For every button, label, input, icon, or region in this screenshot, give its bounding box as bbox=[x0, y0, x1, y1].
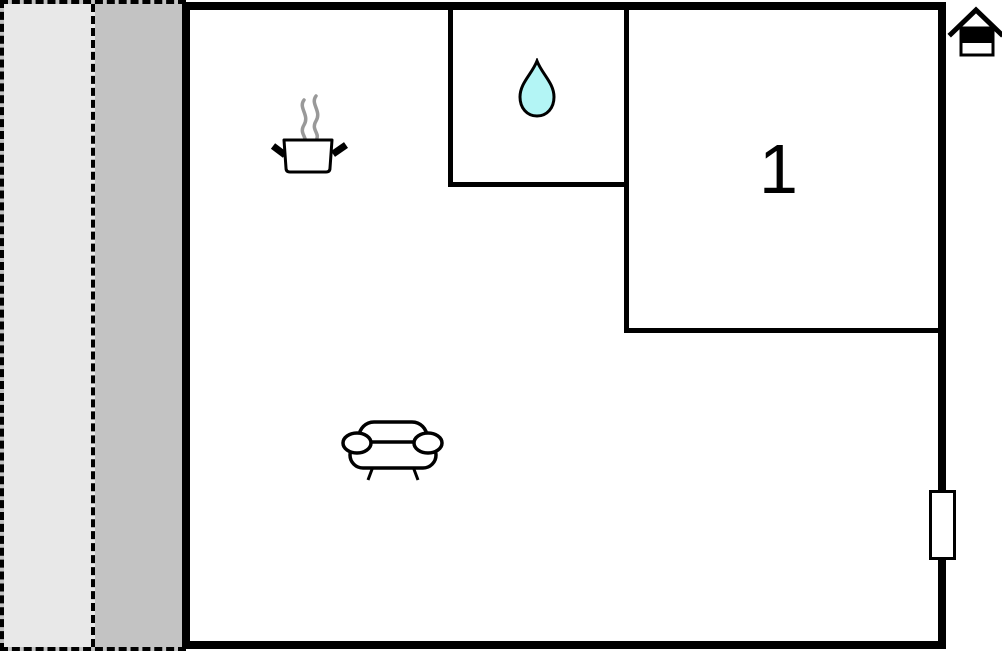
house-icon bbox=[946, 5, 1002, 63]
window-marker bbox=[929, 490, 956, 560]
house-body-upper-half bbox=[961, 28, 993, 42]
bedroom: 1 bbox=[624, 10, 938, 333]
sofa-armrest-left bbox=[343, 433, 371, 453]
water-drop-shape bbox=[520, 61, 554, 116]
terrace-dark-strip bbox=[0, 0, 186, 651]
floor-plan: 1 bbox=[0, 0, 1002, 652]
pot-body bbox=[284, 140, 332, 172]
cooking-pot-icon bbox=[268, 90, 348, 176]
terrace-light-strip bbox=[4, 4, 95, 647]
bedroom-number-label: 1 bbox=[759, 134, 808, 204]
main-room-outline: 1 bbox=[182, 2, 946, 649]
sofa-armrest-right bbox=[414, 433, 442, 453]
steam-line-right bbox=[314, 96, 317, 138]
sofa-icon bbox=[338, 412, 446, 484]
pot-handle-right bbox=[333, 145, 346, 154]
steam-line-left bbox=[302, 100, 305, 142]
water-drop-icon bbox=[515, 58, 559, 120]
